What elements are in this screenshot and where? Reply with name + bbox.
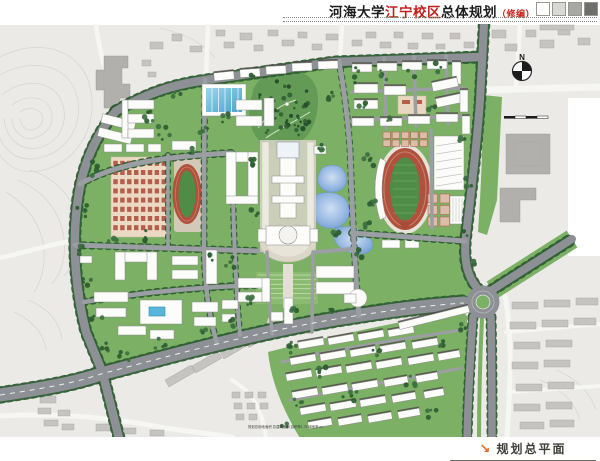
- roundabout: [467, 286, 500, 319]
- main-axis-building: [280, 158, 296, 218]
- title-dotted-rule: [283, 17, 597, 22]
- legend-square: [536, 2, 550, 16]
- campus-master-plan-map: N 规划总用地面积 总建筑面积 容积率1.75 绿地率 m²: [0, 0, 600, 461]
- pavilion-icon: [285, 102, 289, 106]
- title-bar: 河海大学江宁校区总体规划（修编）: [0, 0, 600, 24]
- legend-square: [552, 2, 566, 16]
- footer-bar: ↘规划总平面: [0, 437, 600, 461]
- drawing-label: ↘规划总平面: [450, 440, 596, 461]
- drawing-label-text: 规划总平面: [496, 442, 566, 456]
- stats-note: 规划总用地面积 总建筑面积 容积率1.75 绿地率 m²: [248, 424, 324, 429]
- pool-building: [140, 300, 182, 324]
- legend-square: [584, 2, 598, 16]
- swimming-pool: [149, 307, 165, 316]
- axis-head-building: [277, 142, 299, 158]
- corner-arrow-icon: ↘: [480, 441, 491, 456]
- small-running-track: [173, 158, 203, 232]
- scale-bar: [504, 116, 548, 119]
- svg-text:N: N: [519, 53, 525, 62]
- legend-square: [568, 2, 582, 16]
- title-legend-squares: [536, 2, 598, 16]
